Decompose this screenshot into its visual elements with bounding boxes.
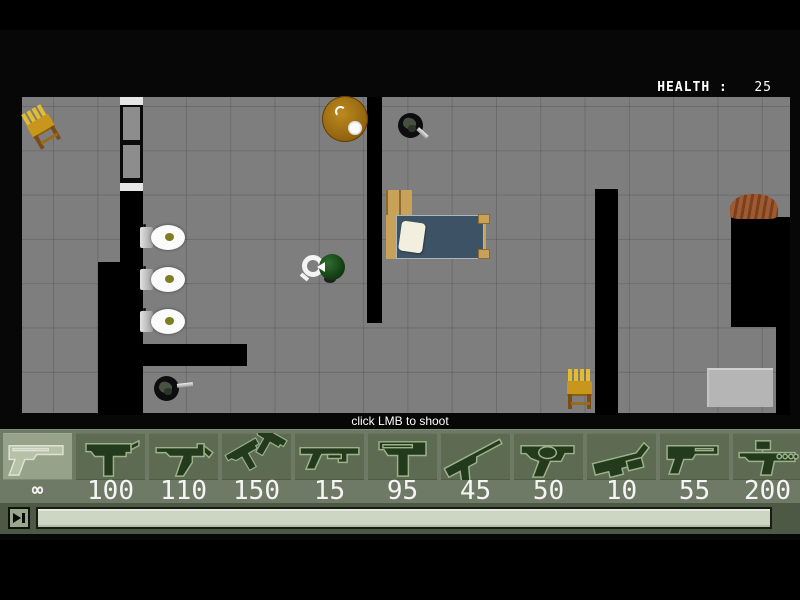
wall bbox=[367, 97, 382, 323]
game-screen: HEALTH : 25 click LMB to shoot ∞10011015… bbox=[0, 0, 800, 600]
next-frame-button[interactable] bbox=[8, 507, 30, 529]
weapon-slot-silenced-pistol[interactable] bbox=[441, 433, 510, 480]
wall bbox=[776, 327, 790, 415]
toilet bbox=[139, 224, 186, 251]
wooden-chair-part bbox=[571, 402, 590, 405]
window-glass bbox=[123, 145, 140, 178]
revolver-icon bbox=[514, 433, 583, 480]
window-glass bbox=[123, 107, 140, 140]
player bbox=[300, 249, 345, 285]
round-table bbox=[322, 96, 368, 142]
wall bbox=[98, 262, 122, 415]
weapon-slot-grenade-launcher[interactable] bbox=[587, 433, 656, 480]
ammo-count: 95 bbox=[368, 478, 437, 504]
ammo-count: 55 bbox=[660, 478, 729, 504]
health-display: HEALTH : 25 bbox=[657, 80, 772, 95]
enemy-knife-part bbox=[408, 125, 416, 132]
crate bbox=[707, 368, 773, 407]
ammo-count: 110 bbox=[149, 478, 218, 504]
bed-part bbox=[478, 249, 490, 259]
weapon-slot-p99-pistol[interactable] bbox=[660, 433, 729, 480]
weapon-slot-dual-uzi[interactable] bbox=[222, 433, 291, 480]
player-part bbox=[317, 262, 325, 272]
weapon-slot-uzi[interactable] bbox=[76, 433, 145, 480]
wall bbox=[143, 344, 247, 366]
wall bbox=[595, 189, 618, 415]
pillow bbox=[398, 220, 426, 253]
wooden-chair bbox=[566, 369, 595, 411]
uzi-icon bbox=[76, 433, 145, 480]
play-icon bbox=[13, 513, 21, 523]
dual-uzi-icon bbox=[222, 433, 291, 480]
weapon-slot-tec9[interactable] bbox=[368, 433, 437, 480]
ammo-count: 10 bbox=[587, 478, 656, 504]
weapon-slot-scoped-rifle[interactable] bbox=[733, 433, 800, 480]
weapon-slot-mp5[interactable] bbox=[149, 433, 218, 480]
wall bbox=[731, 217, 790, 327]
weapon-slot-shotgun[interactable] bbox=[295, 433, 364, 480]
ammo-count: 50 bbox=[514, 478, 583, 504]
toilet-part bbox=[165, 233, 174, 241]
tec9-icon bbox=[368, 433, 437, 480]
playback-control-row bbox=[0, 503, 800, 534]
enemy-pistol-part bbox=[177, 382, 193, 388]
ammo-count: 200 bbox=[733, 478, 800, 504]
silenced-pistol-icon bbox=[441, 433, 510, 480]
toilet bbox=[139, 308, 186, 335]
ammo-count: 45 bbox=[441, 478, 510, 504]
p99-pistol-icon bbox=[660, 433, 729, 480]
stop-bar-icon bbox=[22, 513, 25, 523]
toilet-part bbox=[165, 275, 174, 283]
ammo-count: 15 bbox=[295, 478, 364, 504]
rug-part bbox=[730, 194, 778, 219]
table-top bbox=[322, 96, 368, 142]
window-sill bbox=[120, 97, 143, 105]
enemy-knife[interactable] bbox=[397, 112, 429, 144]
health-label: HEALTH : bbox=[657, 80, 728, 95]
weapon-slot-desert-eagle[interactable] bbox=[3, 433, 72, 480]
window bbox=[120, 97, 143, 191]
mp5-icon bbox=[149, 433, 218, 480]
bed-part bbox=[478, 214, 490, 224]
bed-part bbox=[386, 190, 399, 216]
ammo-count: 150 bbox=[222, 478, 291, 504]
enemy-pistol[interactable] bbox=[152, 374, 196, 404]
cup bbox=[335, 106, 346, 117]
desert-eagle-icon bbox=[3, 433, 72, 480]
hint-text: click LMB to shoot bbox=[0, 414, 800, 428]
grenade-launcher-icon bbox=[587, 433, 656, 480]
plate bbox=[348, 121, 362, 135]
rug bbox=[730, 194, 778, 219]
toilet bbox=[139, 266, 186, 293]
scoped-rifle-icon bbox=[733, 433, 800, 480]
ammo-count: 100 bbox=[76, 478, 145, 504]
toilet-part bbox=[165, 317, 174, 325]
shotgun-icon bbox=[295, 433, 364, 480]
crate-part bbox=[707, 368, 773, 407]
seek-bar[interactable] bbox=[36, 507, 772, 529]
enemy-pistol-part bbox=[164, 388, 172, 395]
wooden-chair-part bbox=[40, 133, 58, 145]
weapon-slot-revolver[interactable] bbox=[514, 433, 583, 480]
health-value: 25 bbox=[754, 80, 772, 95]
ammo-count: ∞ bbox=[3, 478, 72, 504]
bed-part bbox=[399, 190, 412, 216]
bed bbox=[384, 189, 494, 260]
window-sill bbox=[120, 183, 143, 191]
weapon-bar: ∞100110150159545501055200 bbox=[0, 429, 800, 504]
